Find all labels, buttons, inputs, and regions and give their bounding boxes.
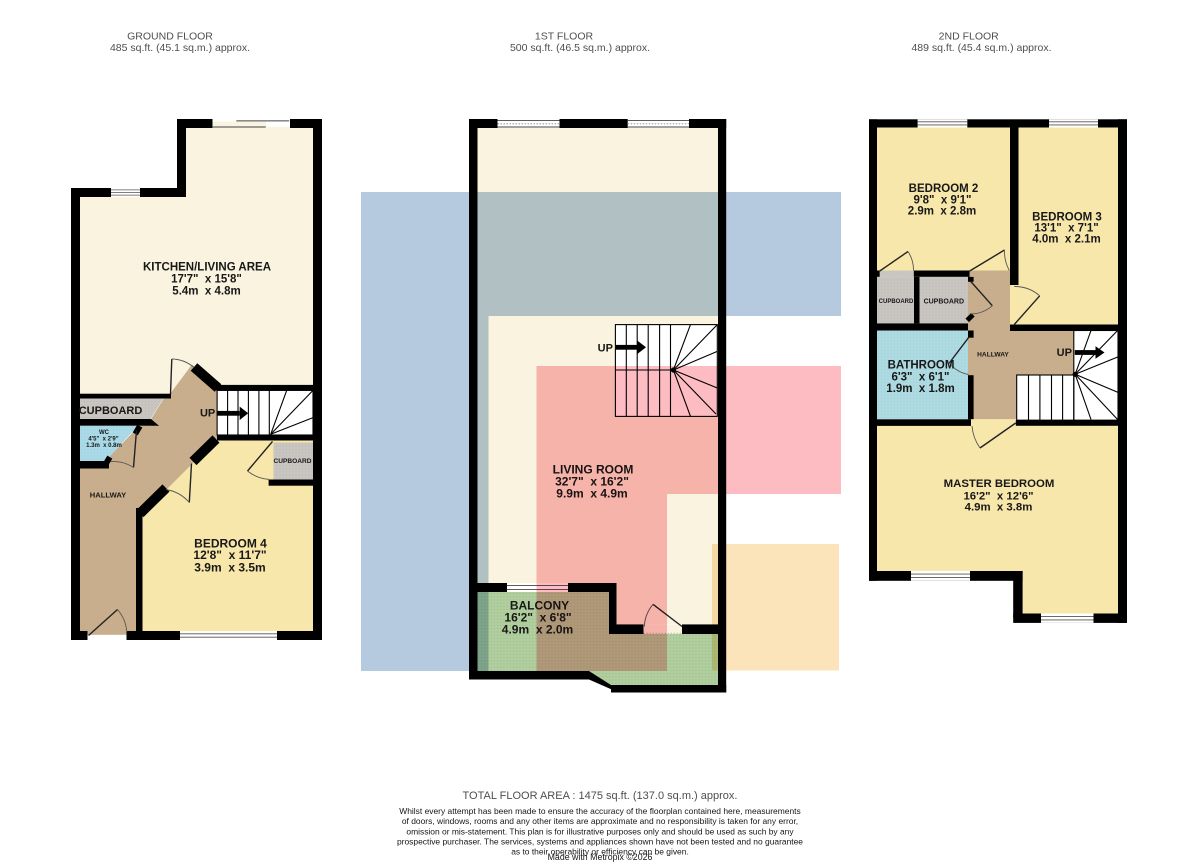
svg-text:UP: UP <box>1057 347 1072 359</box>
svg-text:1ST FLOOR: 1ST FLOOR <box>535 31 594 43</box>
svg-text:1.3m x 0.8m: 1.3m x 0.8m <box>86 443 122 449</box>
svg-text:4.9m x 3.8m: 4.9m x 3.8m <box>965 502 1033 514</box>
svg-text:2.9m x 2.8m: 2.9m x 2.8m <box>908 205 976 217</box>
svg-text:CUPBOARD: CUPBOARD <box>879 299 914 305</box>
svg-text:3.9m x 3.5m: 3.9m x 3.5m <box>194 560 265 574</box>
svg-text:omission or mis-statement. Thi: omission or mis-statement. This plan is … <box>406 826 794 836</box>
svg-text:BATHROOM: BATHROOM <box>888 360 955 372</box>
svg-text:WC: WC <box>99 430 110 436</box>
svg-text:MASTER BEDROOM: MASTER BEDROOM <box>944 478 1055 490</box>
svg-text:HALLWAY: HALLWAY <box>977 351 1009 358</box>
svg-text:UP: UP <box>200 408 215 420</box>
svg-text:17'7" x 15'8": 17'7" x 15'8" <box>171 273 242 285</box>
svg-text:4.0m x 2.1m: 4.0m x 2.1m <box>1032 233 1100 245</box>
svg-text:Made with Metropix ©2026: Made with Metropix ©2026 <box>548 852 653 862</box>
svg-text:CUPBOARD: CUPBOARD <box>273 458 311 465</box>
svg-text:BEDROOM 3: BEDROOM 3 <box>1032 211 1102 223</box>
svg-text:16'2" x 12'6": 16'2" x 12'6" <box>963 490 1033 502</box>
svg-text:500 sq.ft. (46.5 sq.m.) approx: 500 sq.ft. (46.5 sq.m.) approx. <box>510 42 650 54</box>
svg-text:Whilst every attempt has been: Whilst every attempt has been made to en… <box>399 806 800 816</box>
svg-text:UP: UP <box>598 343 613 355</box>
svg-text:1.9m x 1.8m: 1.9m x 1.8m <box>886 383 954 395</box>
svg-text:6'3" x 6'1": 6'3" x 6'1" <box>892 371 950 383</box>
svg-text:489 sq.ft. (45.4 sq.m.) approx: 489 sq.ft. (45.4 sq.m.) approx. <box>911 42 1051 54</box>
svg-text:5.4m x 4.8m: 5.4m x 4.8m <box>172 285 240 297</box>
svg-text:2ND FLOOR: 2ND FLOOR <box>939 31 1000 43</box>
svg-text:prospective purchaser. The ser: prospective purchaser. The services, sys… <box>397 836 803 846</box>
svg-text:KITCHEN/LIVING AREA: KITCHEN/LIVING AREA <box>143 262 271 274</box>
svg-text:GROUND FLOOR: GROUND FLOOR <box>127 31 213 43</box>
svg-text:485 sq.ft. (45.1 sq.m.) approx: 485 sq.ft. (45.1 sq.m.) approx. <box>110 42 250 54</box>
svg-text:of doors, windows, rooms and a: of doors, windows, rooms and any other i… <box>402 816 798 826</box>
svg-text:4'5" x 2'9": 4'5" x 2'9" <box>88 436 118 442</box>
svg-text:TOTAL FLOOR AREA : 1475 sq.ft.: TOTAL FLOOR AREA : 1475 sq.ft. (137.0 sq… <box>463 790 738 802</box>
svg-text:CUPBOARD: CUPBOARD <box>79 405 143 417</box>
svg-text:CUPBOARD: CUPBOARD <box>924 298 964 305</box>
svg-text:HALLWAY: HALLWAY <box>90 490 126 499</box>
